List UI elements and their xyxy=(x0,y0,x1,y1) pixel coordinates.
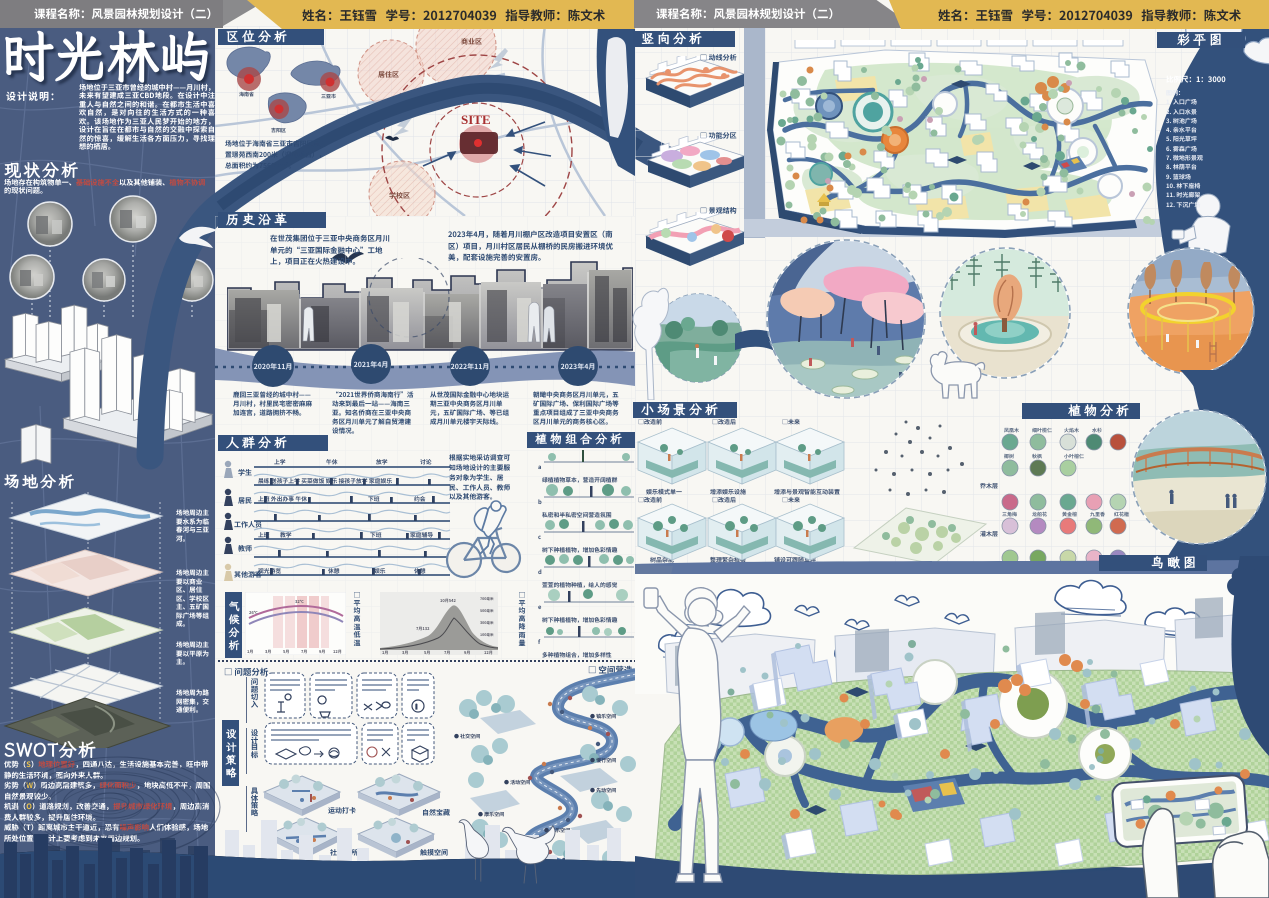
svg-text:绿植植物草本，营造开阔植群: 绿植植物草本，营造开阔植群 xyxy=(542,475,618,484)
svg-text:树下种植植物，增加色彩情趣: 树下种植植物，增加色彩情趣 xyxy=(542,615,618,624)
svg-text:5月: 5月 xyxy=(283,649,289,655)
svg-text:三角梅: 三角梅 xyxy=(1002,511,1017,518)
svg-text:细叶榄仁: 细叶榄仁 xyxy=(1032,427,1052,434)
svg-text:秋枫: 秋枫 xyxy=(1032,453,1042,460)
svg-text:讨论: 讨论 xyxy=(420,457,432,466)
svg-text:b: b xyxy=(538,497,542,506)
svg-text:萱萱的植物种植，给人的感觉: 萱萱的植物种植，给人的感觉 xyxy=(542,580,618,589)
svg-text:私密和半私密空间营造氛围: 私密和半私密空间营造氛围 xyxy=(542,510,612,519)
svg-text:灌木层: 灌木层 xyxy=(980,529,998,538)
svg-text:□未来: □未来 xyxy=(782,418,800,426)
svg-text:12月: 12月 xyxy=(333,649,342,655)
svg-text:□未来: □未来 xyxy=(782,495,800,504)
svg-text:f: f xyxy=(538,637,541,646)
svg-text:2022年11月: 2022年11月 xyxy=(451,362,490,372)
svg-text:100毫米: 100毫米 xyxy=(480,632,494,638)
svg-text:龙船花: 龙船花 xyxy=(1032,511,1047,518)
svg-text:2021年4月: 2021年4月 xyxy=(354,360,389,370)
svg-text:5月: 5月 xyxy=(424,650,430,655)
svg-text:700毫米: 700毫米 xyxy=(480,596,494,602)
svg-text:火焰木: 火焰木 xyxy=(1064,427,1079,434)
svg-text:上学: 上学 xyxy=(274,457,286,466)
svg-text:树下种植植物，增加色彩情趣: 树下种植植物，增加色彩情趣 xyxy=(542,545,618,554)
svg-text:乔木层: 乔木层 xyxy=(980,481,998,490)
svg-text:10月542: 10月542 xyxy=(440,598,456,604)
svg-text:500毫米: 500毫米 xyxy=(480,608,494,614)
svg-text:d: d xyxy=(538,567,542,576)
svg-text:□改造前: □改造前 xyxy=(638,418,662,426)
svg-text:□改造后: □改造后 xyxy=(712,495,736,504)
svg-text:300毫米: 300毫米 xyxy=(480,620,494,626)
svg-text:26℃: 26℃ xyxy=(249,610,258,616)
svg-text:1月: 1月 xyxy=(382,650,388,655)
svg-text:32℃: 32℃ xyxy=(295,599,304,605)
svg-text:小叶榕仁: 小叶榕仁 xyxy=(1064,453,1084,460)
svg-text:● 社交空间: ● 社交空间 xyxy=(454,733,480,740)
svg-text:水杉: 水杉 xyxy=(1092,427,1102,434)
svg-text:2020年11月: 2020年11月 xyxy=(254,362,293,372)
svg-text:9月: 9月 xyxy=(464,650,470,655)
svg-text:● 慢行空间: ● 慢行空间 xyxy=(590,757,616,764)
svg-text:9月: 9月 xyxy=(319,649,325,655)
svg-text:黄金榕: 黄金榕 xyxy=(1062,511,1077,518)
svg-text:● 活动空间: ● 活动空间 xyxy=(504,779,530,786)
svg-text:e: e xyxy=(538,602,542,611)
svg-text:12月: 12月 xyxy=(484,650,493,655)
svg-text:● 镇乐空间: ● 镇乐空间 xyxy=(590,713,616,720)
svg-text:□改造后: □改造后 xyxy=(712,418,736,426)
svg-text:午休: 午休 xyxy=(326,457,338,466)
svg-text:2023年4月: 2023年4月 xyxy=(561,362,596,372)
svg-text:凤凰木: 凤凰木 xyxy=(1004,427,1019,434)
svg-text:1月: 1月 xyxy=(247,649,253,655)
svg-text:● 先动空间: ● 先动空间 xyxy=(590,787,616,794)
svg-text:c: c xyxy=(538,532,541,541)
svg-text:7月: 7月 xyxy=(301,649,307,655)
svg-text:放学: 放学 xyxy=(376,457,388,466)
svg-text:7月132: 7月132 xyxy=(416,626,430,632)
svg-text:多种植物组合，增加多样性: 多种植物组合，增加多样性 xyxy=(542,650,612,659)
svg-text:九里香: 九里香 xyxy=(1090,511,1105,518)
svg-text:i: i xyxy=(416,702,418,711)
svg-text:3月: 3月 xyxy=(402,650,408,655)
svg-text:7月: 7月 xyxy=(444,650,450,655)
svg-text:a: a xyxy=(538,462,541,471)
svg-text:椰树: 椰树 xyxy=(1004,453,1014,460)
svg-text:3月: 3月 xyxy=(265,649,271,655)
svg-text:□改造前: □改造前 xyxy=(638,495,662,504)
